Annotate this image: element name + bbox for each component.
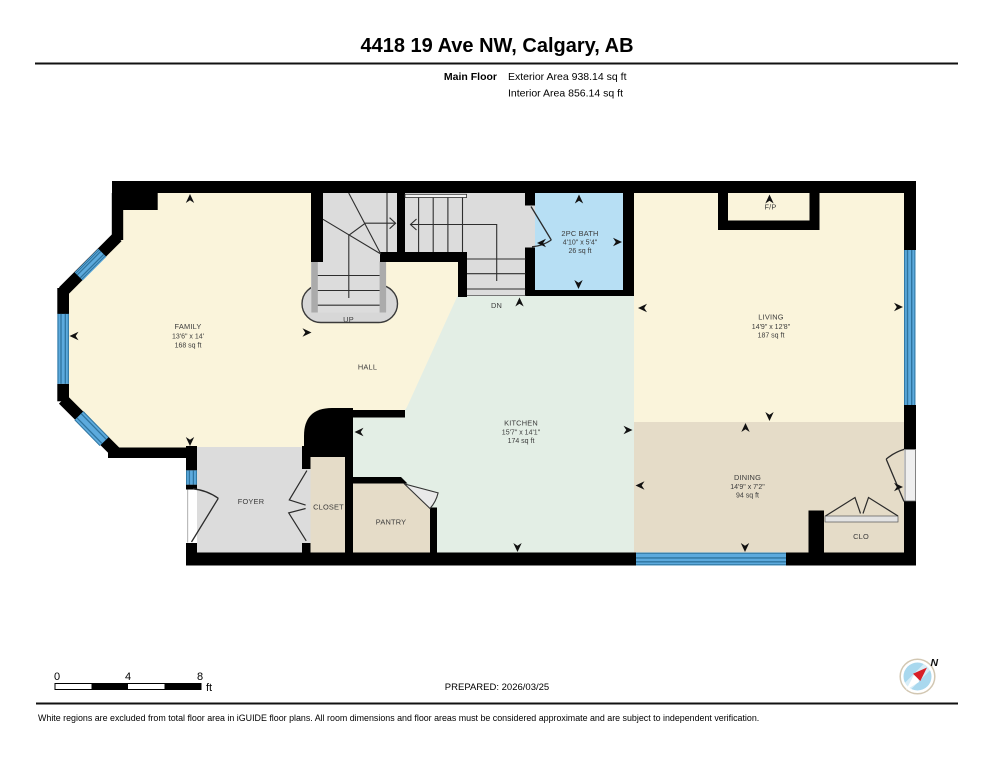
svg-text:White regions are excluded fro: White regions are excluded from total fl… bbox=[38, 713, 759, 723]
svg-text:4'10" x 5'4": 4'10" x 5'4" bbox=[563, 240, 598, 247]
svg-text:Exterior Area 938.14 sq ft: Exterior Area 938.14 sq ft bbox=[508, 71, 627, 83]
svg-text:14'9" x 12'8": 14'9" x 12'8" bbox=[752, 324, 791, 331]
svg-text:PREPARED: 2026/03/25: PREPARED: 2026/03/25 bbox=[445, 682, 549, 693]
svg-text:FOYER: FOYER bbox=[238, 497, 264, 506]
svg-text:14'9" x 7'2": 14'9" x 7'2" bbox=[730, 484, 765, 491]
svg-text:Interior Area 856.14 sq ft: Interior Area 856.14 sq ft bbox=[508, 88, 623, 100]
svg-text:4418 19 Ave NW, Calgary, AB: 4418 19 Ave NW, Calgary, AB bbox=[360, 35, 633, 57]
svg-text:FAMILY: FAMILY bbox=[175, 322, 202, 331]
svg-text:ft: ft bbox=[206, 682, 212, 694]
svg-text:26 sq ft: 26 sq ft bbox=[569, 248, 592, 255]
svg-text:94 sq ft: 94 sq ft bbox=[736, 493, 759, 500]
svg-text:PANTRY: PANTRY bbox=[376, 518, 407, 527]
svg-text:LIVING: LIVING bbox=[758, 313, 783, 322]
svg-text:CLOSET: CLOSET bbox=[313, 503, 344, 512]
svg-text:DN: DN bbox=[491, 301, 502, 310]
svg-text:2PC BATH: 2PC BATH bbox=[561, 229, 598, 238]
svg-text:15'7" x 14'1": 15'7" x 14'1" bbox=[502, 430, 541, 437]
svg-text:UP: UP bbox=[343, 315, 354, 324]
svg-text:KITCHEN: KITCHEN bbox=[504, 419, 538, 428]
svg-text:187 sq ft: 187 sq ft bbox=[758, 333, 785, 340]
svg-text:174 sq ft: 174 sq ft bbox=[508, 438, 535, 445]
svg-text:F/P: F/P bbox=[764, 203, 776, 212]
svg-text:HALL: HALL bbox=[358, 363, 377, 372]
svg-text:8: 8 bbox=[197, 671, 203, 683]
svg-text:0: 0 bbox=[54, 671, 60, 683]
svg-text:Main Floor: Main Floor bbox=[444, 71, 497, 83]
svg-text:CLO: CLO bbox=[853, 532, 869, 541]
svg-text:4: 4 bbox=[125, 671, 131, 683]
svg-text:13'6" x 14': 13'6" x 14' bbox=[172, 334, 204, 341]
svg-text:N: N bbox=[931, 657, 939, 669]
svg-text:168 sq ft: 168 sq ft bbox=[175, 343, 202, 350]
svg-text:DINING: DINING bbox=[734, 473, 761, 482]
